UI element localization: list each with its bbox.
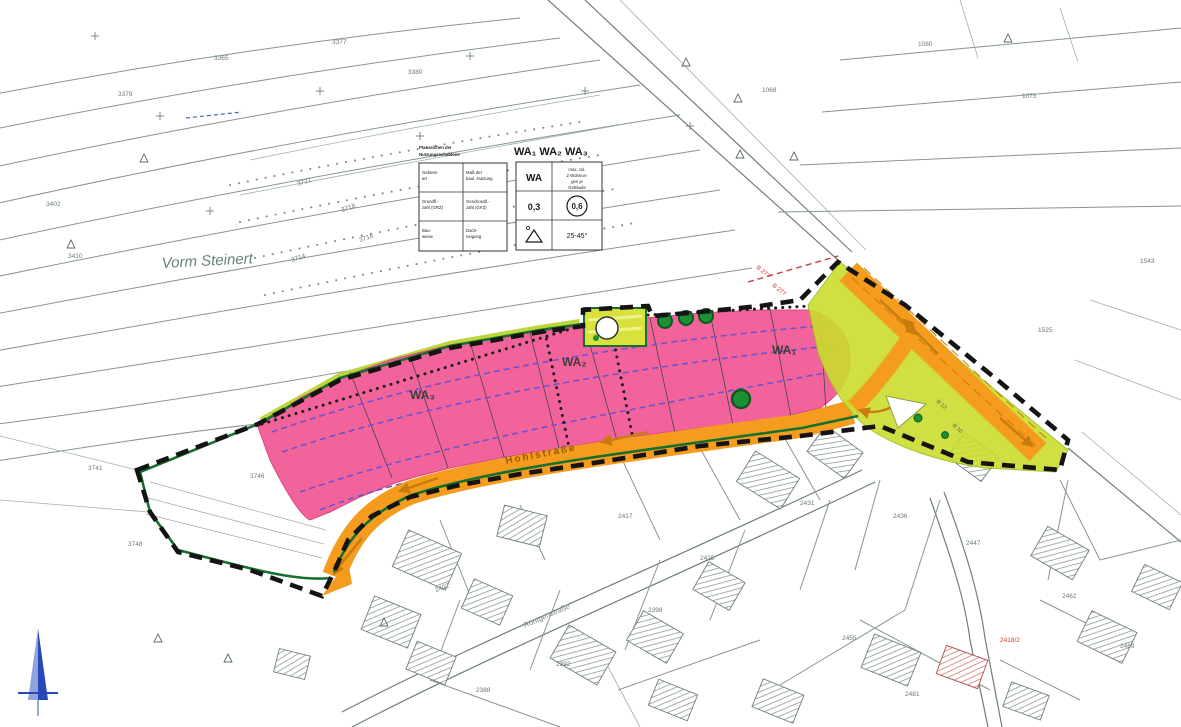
parcel-label: 2462 <box>1062 593 1077 600</box>
legend-key-cell: Dach- <box>466 228 478 233</box>
parcel-label: 3721 <box>296 177 312 188</box>
parcel-label: 3748 <box>128 541 143 548</box>
parcel-label: 3410 <box>68 253 83 260</box>
schablone-grz: 0,3 <box>528 202 541 212</box>
parcel-label: 1525 <box>1038 327 1053 334</box>
zone-label-wa2: WA₂ <box>562 355 587 369</box>
schablone-area-type: WA <box>526 173 542 184</box>
nutzungsschablone: WA₁ WA₂ WA₃ WA max. zul. 2 Wohnun- gen j… <box>514 146 602 250</box>
legend-key-cell: baul. Nutzung <box>466 176 493 181</box>
schablone-note: max. zul. <box>568 167 585 172</box>
parcel-label: 3716 <box>358 233 374 244</box>
legend-key-title-2: Nutzungsschablone <box>419 152 460 157</box>
schablone-note: gen je <box>571 179 583 184</box>
parcel-label: 2392 <box>556 661 571 668</box>
parcel-label: 3746 <box>250 473 265 480</box>
parcel-label: 2455 <box>842 635 857 642</box>
parcel-label: 2388 <box>476 687 491 694</box>
legend-key-cell: zahl (GFZ) <box>466 205 487 210</box>
parcel-label: 2431 <box>800 500 815 507</box>
schablone-note: Gebäude <box>568 185 586 190</box>
parcel-label: 3365 <box>214 55 229 62</box>
zoning-plan-map: Vorm Steinert WA₃ WA₂ WA₁ Hohlstraße Rön… <box>0 0 1181 727</box>
legend-key-cell: art <box>422 176 428 181</box>
legend-key-cell: zahl (GRZ) <box>422 205 444 210</box>
parcel-label: 1068 <box>762 87 777 94</box>
parcel-label: 2469 <box>1120 643 1135 650</box>
parcel-label: 2398 <box>648 607 663 614</box>
tree-preservation-island <box>584 308 646 346</box>
legend-key-cell: Grundfl.- <box>422 199 439 204</box>
legend-key-table: Planzeichen der Nutzungsschablone Gebiet… <box>419 145 507 251</box>
parcel-label: 3380 <box>408 69 423 76</box>
legend-key-cell: weise <box>422 234 434 239</box>
legend-key-cell: Gebiets- <box>422 170 439 175</box>
north-arrow-icon <box>18 628 58 716</box>
legend-key-cell: Geschossfl.- <box>466 199 490 204</box>
existing-tree-icon <box>596 317 618 339</box>
plan-canvas: Vorm Steinert WA₃ WA₂ WA₁ Hohlstraße Rön… <box>0 0 1181 727</box>
lower-parcel-network <box>0 430 1181 727</box>
blue-survey-dash <box>186 112 242 118</box>
road-ref-label-2: B 277 <box>771 283 787 298</box>
parcel-label: 1080 <box>918 41 933 48</box>
zone-label-wa3: WA₃ <box>410 388 435 402</box>
parcel-label: 3377 <box>332 39 347 46</box>
parcel-label: 3741 <box>88 465 103 472</box>
parcel-label: 3714 <box>290 253 306 264</box>
schablone-pitch: 25-45° <box>567 232 588 240</box>
parcel-label: 2481 <box>905 691 920 698</box>
parcel-label: 1075 <box>1022 93 1037 100</box>
schablone-note: 2 Wohnun- <box>567 173 589 178</box>
parcel-label: 3718 <box>340 203 356 214</box>
parcel-label: 2415 <box>700 555 715 562</box>
parcel-label: 3379 <box>118 91 133 98</box>
parcel-label: 2436 <box>893 513 908 520</box>
parcel-label: 3402 <box>46 201 61 208</box>
parcel-label: 1543 <box>1140 258 1155 265</box>
schablone-gfz: 0,6 <box>571 202 583 211</box>
schablone-header: WA₁ WA₂ WA₃ <box>514 146 588 158</box>
legend-key-cell: neigung <box>466 234 482 239</box>
legend-key-cell: Maß der <box>466 170 483 175</box>
parcel-label: 2417 <box>618 513 633 520</box>
legend-key-title-1: Planzeichen der <box>419 145 452 150</box>
parcel-label: 2447 <box>966 540 981 547</box>
legend-key-cell: Bau- <box>422 228 432 233</box>
parcel-label-red: 2418/2 <box>1000 637 1020 644</box>
zone-label-wa1: WA₁ <box>772 343 796 357</box>
